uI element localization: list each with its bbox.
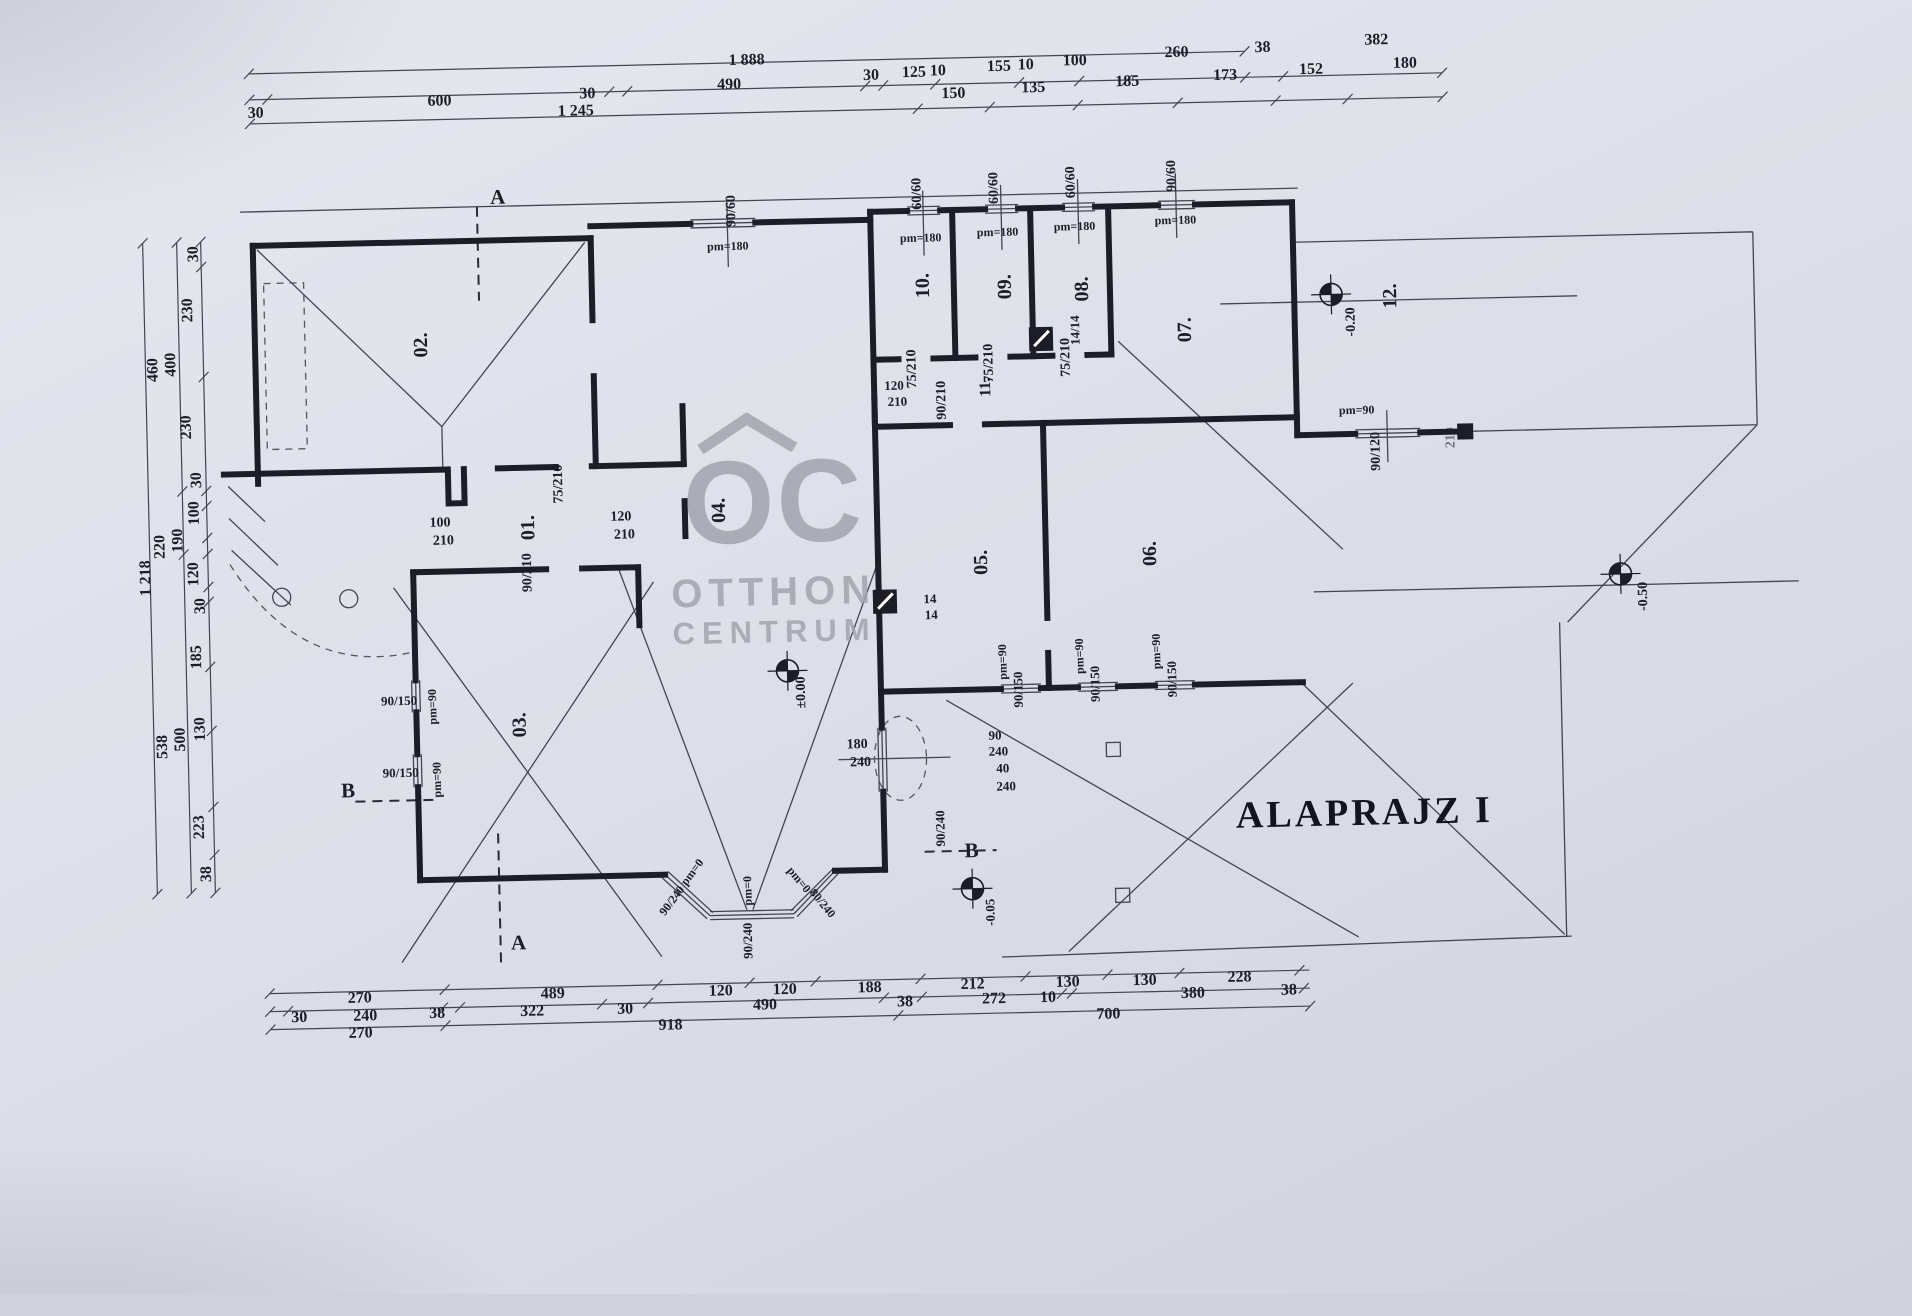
section-mark: B	[341, 780, 355, 801]
dim-bottom: 489	[541, 986, 565, 1003]
window-size: 60/60	[1064, 166, 1079, 198]
section-line-a-bottom	[498, 833, 501, 965]
dim-top: 600	[427, 93, 451, 110]
parapet: pm=90	[1339, 403, 1375, 416]
door-size: 210	[614, 528, 635, 542]
window-size: 90/60	[725, 195, 740, 227]
floor-plan-photo: OC OTTHON CENTRUM ALAPRAJZ I 1 888306003…	[0, 0, 1912, 1294]
door-size: 90/210	[935, 381, 950, 420]
benchmark-icon	[1600, 553, 1641, 594]
floor-plan: OC OTTHON CENTRUM ALAPRAJZ I 1 888306003…	[0, 0, 1912, 1316]
dim-bottom: 10	[1040, 990, 1056, 1006]
dim-top: 490	[717, 77, 741, 94]
dim-left: 460	[145, 358, 162, 382]
room-12: 12.	[1380, 283, 1401, 308]
shafts	[867, 317, 1477, 614]
section-line-a-top	[477, 207, 479, 301]
dim-bottom: 38	[897, 994, 913, 1010]
door-size: 210	[433, 534, 454, 548]
dim-top: 155	[987, 59, 1011, 76]
window-size: 60/60	[910, 178, 925, 210]
level: -0.50	[1637, 582, 1652, 611]
drawing-title: ALAPRAJZ I	[1235, 788, 1493, 838]
dim-left: 220	[152, 535, 169, 559]
flue-size: 14	[925, 608, 938, 621]
parapet: pm=180	[707, 240, 749, 253]
section-line-b-left	[355, 800, 435, 802]
door-size: 40	[996, 761, 1009, 774]
dim-top: 10	[930, 63, 946, 79]
dim-left: 30	[186, 246, 202, 262]
watermark-line1: OTTHON	[658, 568, 889, 618]
door-size: 120	[610, 510, 631, 524]
dim-top: 173	[1213, 67, 1237, 84]
window-size: 90/240	[741, 923, 755, 959]
flue-size: 14/14	[1068, 315, 1082, 345]
dim-bottom: 380	[1181, 985, 1205, 1002]
dim-left: 538	[155, 735, 172, 759]
dim-top: 30	[579, 86, 595, 102]
door-size: 210	[888, 395, 908, 408]
dim-bottom: 490	[753, 997, 777, 1014]
parapet: pm=90	[426, 689, 439, 725]
dim-top: 125	[902, 65, 926, 82]
door-size: 75/210	[905, 349, 920, 388]
parapet: pm=180	[977, 225, 1019, 238]
level: -0.05	[983, 899, 997, 926]
dim-bottom: 700	[1096, 1006, 1120, 1023]
dim-left: 230	[179, 415, 196, 439]
dim-top: 150	[941, 86, 965, 103]
dim-bottom: 30	[291, 1010, 307, 1026]
dim-left: 120	[186, 562, 203, 586]
door-size: 75/210	[552, 464, 567, 503]
dim-top: 30	[248, 106, 264, 122]
room-02: 02.	[411, 332, 432, 357]
dim-top: 135	[1021, 80, 1045, 97]
dim-left: 100	[186, 501, 203, 525]
dim-left: 400	[163, 353, 180, 377]
window-size: 210	[1444, 427, 1458, 448]
dim-bottom: 30	[617, 1001, 633, 1017]
window-size: 90/120	[1369, 432, 1384, 471]
dim-left: 190	[170, 528, 187, 552]
window-size: 90/150	[1088, 666, 1102, 702]
dim-left: 230	[180, 298, 197, 322]
dim-top: 38	[1254, 40, 1270, 56]
window-size: 180	[847, 738, 868, 752]
dim-top: 100	[1063, 53, 1087, 70]
dim-top: 180	[1393, 55, 1417, 72]
room-06: 06.	[1140, 541, 1161, 566]
dim-bottom: 38	[429, 1006, 445, 1022]
dim-top: 185	[1115, 74, 1139, 91]
room-07: 07.	[1175, 317, 1196, 342]
dim-left: 185	[189, 645, 206, 669]
door-size: 240	[996, 779, 1016, 792]
dim-top: 1 245	[558, 103, 594, 120]
wall-post	[1457, 423, 1473, 439]
door-size: 100	[429, 516, 450, 530]
window-size: 90/60	[1165, 160, 1180, 192]
parapet: pm=90	[1150, 634, 1163, 670]
dim-bottom: 918	[658, 1017, 682, 1034]
dim-top: 152	[1299, 62, 1323, 79]
door-size: 240	[988, 744, 1008, 757]
section-line-b-right	[925, 850, 997, 852]
parapet: pm=90	[1073, 638, 1086, 674]
room-01: 01.	[518, 515, 539, 540]
parapet: pm=0	[741, 876, 754, 906]
door-size: 120	[884, 379, 904, 392]
dim-bottom: 272	[982, 991, 1006, 1008]
window-size: 240	[850, 756, 871, 770]
door-size: 90	[988, 728, 1001, 741]
dim-top: 382	[1364, 32, 1388, 49]
window-size: 90/150	[383, 766, 419, 780]
dim-top: 30	[863, 68, 879, 84]
parapet: pm=180	[1154, 213, 1196, 226]
window-size: 90/150	[1011, 671, 1025, 707]
level: -0.20	[1344, 307, 1359, 336]
dim-left: 1 218	[138, 560, 155, 596]
door-size: 90/240	[933, 810, 947, 846]
dim-bottom: 188	[858, 980, 882, 997]
dim-top: 1 888	[728, 52, 764, 69]
room-09: 09.	[995, 274, 1016, 299]
dim-left: 223	[192, 815, 209, 839]
room-10: 10.	[913, 273, 934, 298]
level: ±0.00	[795, 676, 810, 708]
dim-bottom: 130	[1055, 974, 1079, 991]
dim-left: 500	[173, 727, 190, 751]
room-03: 03.	[509, 712, 530, 737]
dim-left: 30	[189, 472, 205, 488]
dim-bottom: 240	[353, 1008, 377, 1025]
dim-left: 30	[193, 598, 209, 614]
window-size: 90/150	[1165, 661, 1179, 697]
dim-bottom: 120	[709, 983, 733, 1000]
dim-left: 130	[192, 717, 209, 741]
section-mark: A	[490, 187, 506, 208]
room-04: 04.	[709, 498, 730, 523]
watermark-line2: CENTRUM	[654, 611, 895, 652]
dim-bottom: 228	[1227, 969, 1251, 986]
parapet: pm=90	[430, 762, 443, 798]
door-size: 75/210	[982, 344, 997, 383]
parapet: pm=90	[996, 644, 1009, 680]
dim-top: 10	[1018, 57, 1034, 73]
dim-bottom: 38	[1281, 982, 1297, 998]
room-05: 05.	[971, 550, 992, 575]
dim-bottom: 270	[348, 1025, 372, 1042]
parapet: pm=180	[900, 231, 942, 244]
window-size: 60/60	[987, 172, 1002, 204]
dim-bottom: 322	[520, 1003, 544, 1020]
section-mark: A	[511, 932, 527, 953]
dim-top: 260	[1164, 45, 1188, 62]
room-08: 08.	[1072, 276, 1093, 301]
parapet: pm=180	[1054, 220, 1096, 233]
flue-size: 14	[923, 592, 936, 605]
dim-bottom: 130	[1132, 973, 1156, 990]
dim-left: 38	[199, 866, 215, 882]
window-size: 90/150	[381, 694, 417, 708]
dim-bottom: 270	[348, 990, 372, 1007]
section-mark: B	[964, 840, 978, 861]
door-size: 90/210	[521, 553, 536, 592]
floor-plan-drawing	[0, 0, 1912, 1316]
